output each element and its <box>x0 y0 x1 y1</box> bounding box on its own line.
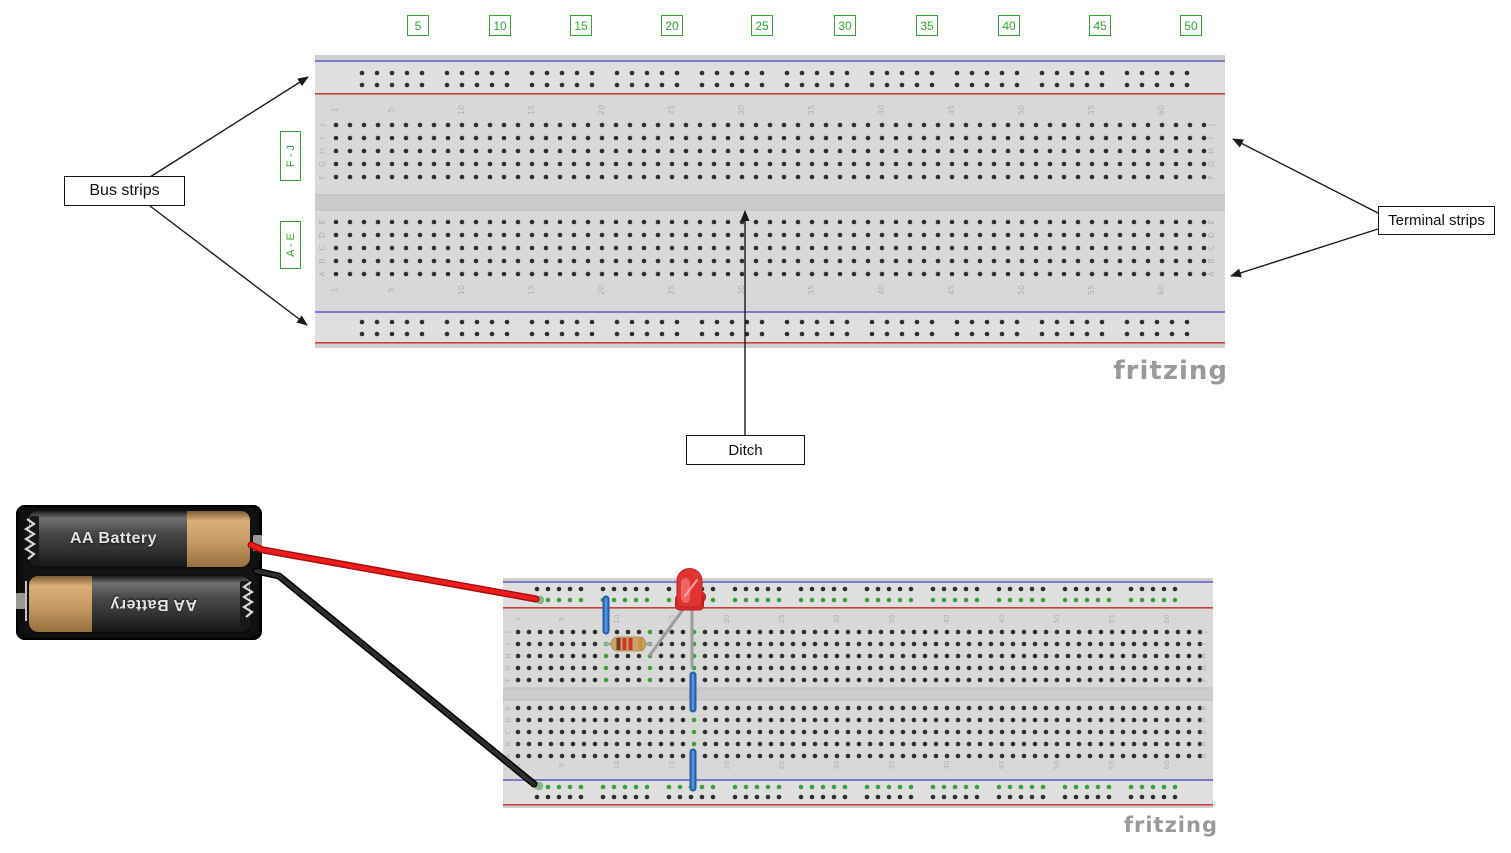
terminal-strips-label: Terminal strips <box>1378 206 1495 235</box>
terminal-strips-arrow-top <box>1233 139 1378 213</box>
breadboard-tutorial-diagram: 1155101015152020252530303535404045455050… <box>0 0 1511 853</box>
column-marker: 45 <box>1089 15 1111 36</box>
column-marker: 40 <box>998 15 1020 36</box>
row-range-f-j-label: F - J <box>280 131 301 181</box>
column-marker: 5 <box>407 15 429 36</box>
wires-and-annotations <box>0 0 1511 853</box>
column-marker: 20 <box>661 15 683 36</box>
red-led <box>650 569 706 668</box>
row-range-a-e-label: A - E <box>280 221 301 269</box>
terminal-strips-text: Terminal strips <box>1388 212 1485 229</box>
led-leg <box>650 608 684 655</box>
column-marker: 15 <box>570 15 592 36</box>
resistor <box>605 637 651 651</box>
bus-strips-label: Bus strips <box>64 176 185 206</box>
ditch-text: Ditch <box>728 442 762 459</box>
bus-strips-text: Bus strips <box>89 182 159 200</box>
column-marker: 25 <box>751 15 773 36</box>
column-marker: 30 <box>834 15 856 36</box>
negative-wire-core <box>256 571 534 784</box>
callout-arrows <box>150 77 1378 435</box>
ditch-label: Ditch <box>686 435 805 465</box>
column-marker: 10 <box>489 15 511 36</box>
terminal-strips-arrow-bottom <box>1231 229 1378 276</box>
column-marker: 50 <box>1180 15 1202 36</box>
column-marker: 35 <box>916 15 938 36</box>
